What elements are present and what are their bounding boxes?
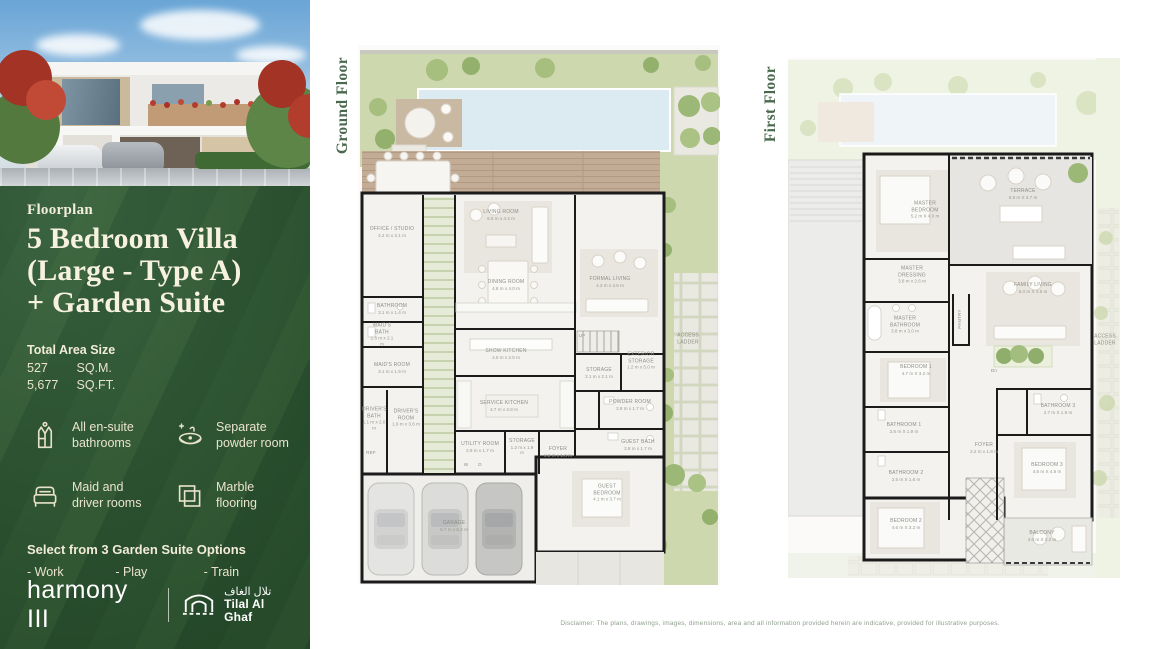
room-label: UTILITY ROOM2.9 m x 1.7 m: [461, 441, 499, 453]
feature-ensuite-bathrooms: All en-suitebathrooms: [27, 418, 171, 454]
room-label: POWDER ROOM2.8 m x 1.7 m: [609, 399, 651, 411]
room-label: LIVING ROOM6.5 m x 4.4 m: [483, 209, 519, 221]
room-label: MASTER DRESSING3.8 m x 2.6 m: [893, 266, 931, 285]
ground-floor-plan: OFFICE / STUDIO4.2 m x 3.1 mBATHROOM3.1 …: [358, 45, 720, 585]
sink-icon: [171, 418, 207, 454]
bed-icon: [27, 478, 63, 514]
feature-marble-flooring: Marbleflooring: [171, 478, 292, 514]
room-label: MAID'S ROOM3.1 m x 1.9 m: [374, 362, 410, 374]
feature-label: All en-suitebathrooms: [72, 420, 134, 451]
bathrobe-icon: [27, 418, 63, 454]
brochure-page: Floorplan 5 Bedroom Villa (Large - Type …: [0, 0, 1161, 649]
title-line-1: 5 Bedroom Villa: [27, 223, 292, 255]
photo-window: [62, 79, 120, 125]
room-label: BATHROOM3.1 m x 1.4 m: [377, 303, 407, 315]
sidebar: Floorplan 5 Bedroom Villa (Large - Type …: [0, 0, 310, 649]
room-label: BATHROOM 32.7 m X 1.9 m: [1041, 403, 1076, 415]
first-floor-label: First Floor: [762, 66, 780, 142]
photo-roof-slab: [16, 62, 294, 75]
feature-label: Marbleflooring: [216, 480, 257, 511]
room-label: BEDROOM 14.7 m X 3.2 m: [900, 364, 932, 376]
first-floor-plan: MASTER BEDROOM5.2 m X 4.0 mTERRACE5.9 m …: [788, 58, 1120, 578]
room-label: W: [464, 462, 469, 468]
room-label: MAID'S BATH1.6 m x 2.1 m: [369, 323, 395, 348]
room-label: GUEST BATH2.8 m x 1.7 m: [621, 439, 655, 451]
area-sqm-unit: SQ.M.: [76, 361, 111, 375]
feature-maid-driver-rooms: Maid anddriver rooms: [27, 478, 171, 514]
room-label: MASTER BATHROOM3.8 m x 3.0 m: [885, 316, 925, 335]
first-floor-room-labels: MASTER BEDROOM5.2 m X 4.0 mTERRACE5.9 m …: [788, 58, 1120, 578]
room-label: TERRACE5.9 m X 3.7 m: [1009, 188, 1038, 200]
disclaimer-text: Disclaimer: The plans, drawings, images,…: [545, 620, 1015, 627]
villa-photo: [0, 0, 310, 186]
garden-suite-block: Select from 3 Garden Suite Options - Wor…: [27, 542, 292, 579]
room-label: BEDROOM 24.6 m X 3.2 m: [890, 518, 922, 530]
photo-car: [102, 142, 164, 170]
room-label: MASTER BEDROOM5.2 m X 4.0 m: [906, 201, 944, 220]
room-label: BATHROOM 22.5 m X 1.6 m: [889, 470, 924, 482]
photo-balcony: [148, 104, 258, 127]
title-line-2: (Large - Type A): [27, 255, 292, 287]
tilal-al-ghaf-logo: تلال الغاف Tilal Al Ghaf: [182, 586, 294, 624]
room-label: PANTRY: [957, 309, 963, 328]
tilal-english-text: Tilal Al Ghaf: [224, 598, 294, 624]
room-label: SHOW KITCHEN4.0 m x 2.5 m: [485, 348, 526, 360]
feature-label: Maid anddriver rooms: [72, 480, 141, 511]
area-sqft-value: 5,677: [27, 377, 73, 394]
title-line-3: + Garden Suite: [27, 287, 292, 319]
sidebar-content: Floorplan 5 Bedroom Villa (Large - Type …: [0, 186, 310, 649]
total-area-heading: Total Area Size: [27, 343, 292, 357]
room-label: ACCESS LADDER: [1091, 334, 1119, 347]
room-label: EXTERIOR STORAGE1.2 m x 5.0 m: [624, 352, 658, 371]
room-label: BEDROOM 34.6 m X 4.6 m: [1031, 462, 1063, 474]
room-label: Dn: [991, 368, 997, 374]
page-title: 5 Bedroom Villa (Large - Type A) + Garde…: [27, 223, 292, 319]
photo-flower-tree: [26, 80, 66, 120]
room-label: STORAGE2.1 m x 2.1 m: [585, 367, 613, 379]
room-label: FORMAL LIVING4.3 m x 4.6 m: [589, 276, 630, 288]
room-label: STORAGE1.2 m x 1.9 m: [509, 438, 535, 456]
room-label: UP: [579, 333, 586, 339]
feature-list: All en-suitebathrooms Sep: [27, 418, 292, 514]
room-label: GARAGE9.7 m x 6.2 m: [440, 520, 468, 532]
room-label: ACCESS LADDER: [674, 333, 702, 346]
floorplan-eyebrow: Floorplan: [27, 202, 292, 219]
room-label: BATHROOM 12.5 m X 1.9 m: [887, 422, 922, 434]
marble-tiles-icon: [171, 478, 207, 514]
room-label: D: [478, 462, 482, 468]
room-label: BALCONY4.0 m X 2.2 m: [1028, 530, 1057, 542]
garden-suite-heading: Select from 3 Garden Suite Options: [27, 542, 292, 557]
tilal-logo-text: تلال الغاف Tilal Al Ghaf: [224, 586, 294, 624]
area-sqm-value: 527: [27, 360, 73, 377]
area-row-sqft: 5,677 SQ.FT.: [27, 377, 292, 394]
room-label: REF: [366, 450, 376, 456]
room-label: OFFICE / STUDIO4.2 m x 3.1 m: [370, 226, 414, 238]
photo-cloud: [140, 10, 260, 40]
room-label: SERVICE KITCHEN4.7 m x 2.8 m: [480, 400, 528, 412]
ground-floor-label: Ground Floor: [334, 57, 352, 154]
photo-cloud: [36, 34, 120, 56]
ground-floor-room-labels: OFFICE / STUDIO4.2 m x 3.1 mBATHROOM3.1 …: [358, 45, 720, 585]
arch-gate-icon: [182, 589, 216, 621]
photo-driveway: [0, 168, 310, 186]
harmony-logo: harmony III: [27, 576, 155, 634]
area-sqft-unit: SQ.FT.: [76, 378, 115, 392]
room-label: FOYER2.2 m x 1.8 m: [970, 442, 998, 454]
feature-powder-room: Separatepowder room: [171, 418, 292, 454]
brand-bar: harmony III تلال الغاف Tilal Al Ghaf: [27, 576, 294, 634]
room-label: DINING ROOM4.8 m x 4.0 m: [488, 279, 525, 291]
brand-divider: [168, 588, 169, 622]
area-row-sqm: 527 SQ.M.: [27, 360, 292, 377]
feature-label: Separatepowder room: [216, 420, 289, 451]
room-label: FOYER2.2 m x 1.8 m: [544, 446, 572, 458]
room-label: DRIVER'S ROOM1.9 m x 3.6 m: [391, 409, 421, 428]
photo-balcony-flowers: [150, 100, 156, 106]
room-label: GUEST BEDROOM4.1 m x 3.7 m: [589, 484, 625, 503]
room-label: FAMILY LIVING5.0 m X 4.5 m: [1014, 282, 1052, 294]
room-label: DRIVER'S BATH1.1 m x 2.0 m: [362, 407, 386, 432]
total-area-block: Total Area Size 527 SQ.M. 5,677 SQ.FT.: [27, 343, 292, 394]
